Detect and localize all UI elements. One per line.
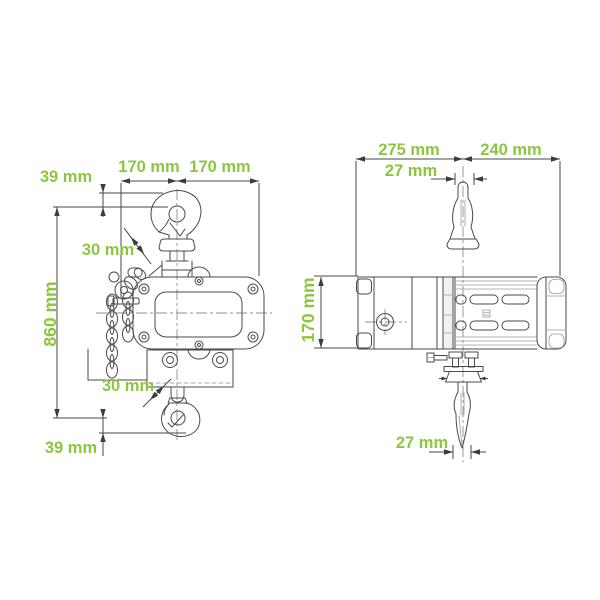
bottom-hook-side-icon [454,382,470,448]
dim-label-front-top-offset: 39 mm [40,168,92,186]
bottom-hook-front-icon [162,398,200,436]
dim-label-hook-to-hook-height: 860 mm [40,281,60,346]
dim-label-top-hook-opening: 30 mm [82,241,134,259]
drawing-canvas: 39 mm 170 mm 170 mm 30 mm 860 mm 30 mm 3… [0,0,600,600]
dim-label-side-length-right: 240 mm [480,141,541,159]
dim-label-front-width-right: 170 mm [189,158,250,176]
front-view-dimensions [53,178,259,456]
top-hook-front-icon [151,191,201,251]
front-view-drawing [88,191,264,437]
dim-label-front-width-left: 170 mm [118,158,179,176]
hoist-body-side [357,277,567,349]
load-chain [107,266,148,378]
bottom-block-front [147,350,233,402]
dim-label-side-length-left: 275 mm [378,141,439,159]
dim-label-front-bottom-offset: 39 mm [45,439,97,457]
dim-label-bottom-hook-width: 27 mm [396,434,448,452]
dimension-drawing: 39 mm 170 mm 170 mm 30 mm 860 mm 30 mm 3… [0,0,600,600]
dim-label-side-height: 170 mm [298,277,318,342]
dim-label-top-hook-width: 27 mm [385,162,437,180]
dim-label-bottom-hook-opening: 30 mm [102,377,154,395]
side-view-drawing [357,182,567,448]
bottom-suspension-side [427,352,483,382]
